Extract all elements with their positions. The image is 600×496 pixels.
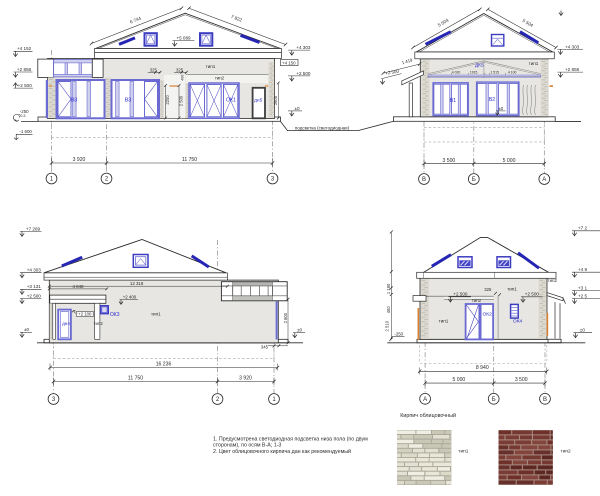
svg-text:В: В (422, 177, 426, 183)
svg-text:В: В (543, 397, 547, 403)
svg-text:+2 400: +2 400 (123, 294, 137, 299)
svg-text:ОК2: ОК2 (483, 311, 493, 317)
svg-text:ОК1: ОК1 (226, 98, 236, 104)
svg-text:±0: ±0 (24, 327, 30, 332)
svg-text:+2 500: +2 500 (18, 83, 33, 88)
svg-text:2 500: 2 500 (178, 95, 183, 106)
svg-text:+4 9: +4 9 (578, 267, 588, 272)
svg-text:+2 500: +2 500 (296, 71, 311, 76)
svg-text:5 000: 5 000 (453, 377, 466, 383)
svg-text:дн4: дн4 (62, 321, 70, 326)
svg-text:тип1: тип1 (507, 286, 517, 291)
svg-text:тип2: тип2 (215, 75, 225, 80)
svg-text:Б: Б (472, 177, 476, 183)
svg-text:подсветка (светодиодная): подсветка (светодиодная) (295, 125, 350, 130)
svg-text:-250: -250 (394, 331, 403, 336)
svg-text:В1: В1 (450, 98, 456, 104)
svg-text:+7 269: +7 269 (26, 226, 41, 231)
svg-text:460: 460 (386, 306, 391, 314)
svg-text:ОК3: ОК3 (110, 312, 120, 318)
svg-text:+5 089: +5 089 (176, 36, 191, 41)
svg-text:3 920: 3 920 (239, 375, 252, 381)
svg-text:тип2: тип2 (548, 278, 558, 283)
svg-text:2. Цвет облицовочного кирпича: 2. Цвет облицовочного кирпича дан как ре… (213, 448, 351, 455)
svg-text:±0: ±0 (498, 106, 503, 111)
svg-text:-1 600: -1 600 (19, 129, 32, 134)
svg-text:+4 150: +4 150 (282, 60, 296, 65)
svg-text:+4 152: +4 152 (17, 46, 32, 51)
svg-text:+2 5: +2 5 (578, 293, 588, 298)
svg-text:8 940: 8 940 (476, 365, 489, 371)
svg-text:сторонам), по осям В-А; 1-3: сторонам), по осям В-А; 1-3 (213, 443, 281, 449)
svg-text:+3 1: +3 1 (578, 285, 588, 290)
svg-text:тип1: тип1 (529, 61, 539, 66)
svg-text:тип1: тип1 (439, 319, 449, 324)
svg-text:+4 303: +4 303 (27, 268, 42, 273)
svg-text:тип2: тип2 (472, 298, 482, 303)
svg-text:325: 325 (484, 287, 492, 292)
svg-text:16 236: 16 236 (156, 361, 172, 367)
svg-text:+2 100: +2 100 (78, 312, 92, 317)
svg-text:3 500: 3 500 (443, 158, 456, 164)
svg-text:тип1: тип1 (458, 448, 468, 454)
svg-text:4 040: 4 040 (73, 284, 85, 289)
svg-text:+2 856: +2 856 (565, 67, 580, 72)
svg-text:тип1: тип1 (151, 311, 161, 316)
svg-text:2600: 2600 (273, 95, 278, 105)
svg-text:11 750: 11 750 (128, 375, 143, 381)
svg-text:+2 856: +2 856 (17, 67, 32, 72)
svg-text:11 750: 11 750 (182, 157, 197, 163)
svg-text:В2: В2 (489, 97, 495, 103)
svg-text:2200: 2200 (165, 95, 170, 105)
svg-text:А: А (423, 397, 427, 403)
svg-text:±0: ±0 (580, 328, 586, 333)
svg-text:+2 500: +2 500 (27, 293, 42, 298)
svg-text:±0: ±0 (295, 106, 301, 111)
svg-text:ОК4: ОК4 (513, 319, 523, 325)
svg-text:тип2: тип2 (94, 321, 104, 326)
svg-text:+4 303: +4 303 (296, 45, 311, 50)
svg-text:1 180: 1 180 (386, 283, 391, 294)
svg-text:А: А (542, 177, 546, 183)
svg-text:12 318: 12 318 (130, 281, 144, 286)
svg-text:345: 345 (261, 345, 269, 350)
svg-text:дн5: дн5 (254, 98, 262, 104)
svg-text:1915: 1915 (470, 71, 478, 75)
svg-text:тип2: тип2 (561, 448, 571, 454)
svg-text:+7 2: +7 2 (578, 226, 588, 231)
svg-text:±0: ±0 (297, 328, 303, 333)
svg-text:2 800: 2 800 (283, 312, 288, 323)
svg-text:+4 303: +4 303 (565, 44, 580, 49)
svg-text:+2 500: +2 500 (525, 292, 540, 297)
svg-text:2 510: 2 510 (384, 320, 389, 331)
svg-text:В3: В3 (71, 98, 78, 104)
svg-text:1 515: 1 515 (490, 71, 499, 75)
svg-text:400: 400 (180, 75, 184, 81)
svg-text:3 500: 3 500 (515, 377, 528, 383)
svg-text:Б: Б (492, 397, 496, 403)
svg-text:+2 500: +2 500 (453, 292, 468, 297)
svg-text:В3: В3 (125, 98, 132, 104)
svg-text:4 020: 4 020 (452, 71, 461, 75)
svg-text:тип1: тип1 (206, 64, 216, 69)
svg-text:3 920: 3 920 (73, 157, 86, 163)
svg-text:5 000: 5 000 (503, 158, 516, 164)
svg-text:у0.3: у0.3 (19, 114, 26, 118)
svg-text:+3 131: +3 131 (27, 284, 42, 289)
svg-text:4 100: 4 100 (508, 71, 517, 75)
svg-text:Кирпич облицовочный: Кирпич облицовочный (400, 412, 456, 419)
svg-text:ДК5: ДК5 (475, 63, 484, 69)
